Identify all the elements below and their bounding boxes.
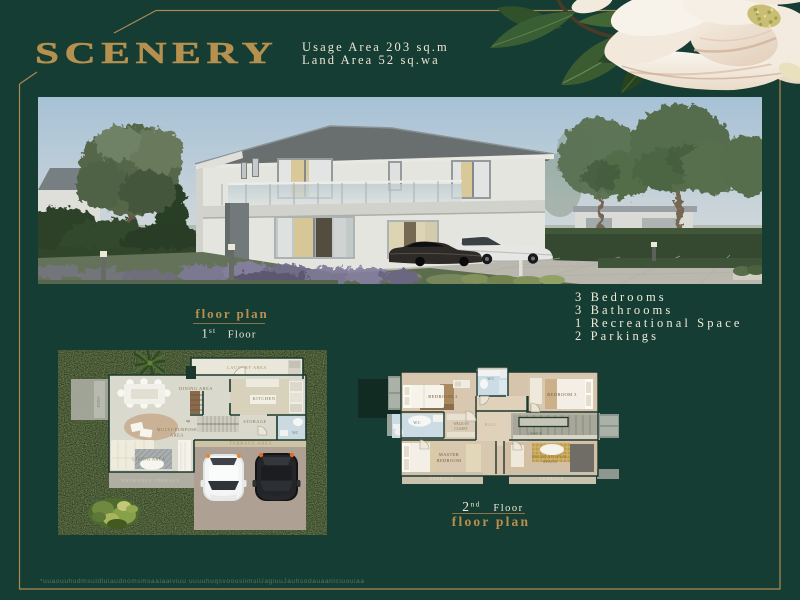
svg-text:BEDROOM 3: BEDROOM 3 bbox=[547, 392, 577, 397]
svg-text:WC: WC bbox=[413, 420, 421, 425]
svg-text:DINING AREA: DINING AREA bbox=[179, 386, 213, 391]
svg-text:WC: WC bbox=[487, 376, 495, 381]
svg-text:HALL: HALL bbox=[485, 422, 498, 427]
svg-text:CLOSET: CLOSET bbox=[454, 427, 468, 431]
svg-text:KITCHEN: KITCHEN bbox=[253, 396, 276, 401]
svg-text:PATIO: PATIO bbox=[96, 396, 101, 407]
svg-text:↓down ⊄: ↓down ⊄ bbox=[528, 432, 542, 436]
svg-text:TERRACE AREA: TERRACE AREA bbox=[229, 441, 272, 446]
svg-text:ENTRANCE TERRACE: ENTRANCE TERRACE bbox=[122, 478, 180, 483]
svg-text:up: up bbox=[186, 418, 190, 423]
svg-text:WC: WC bbox=[292, 430, 299, 435]
svg-text:AREA: AREA bbox=[170, 433, 184, 438]
svg-text:STORAGE: STORAGE bbox=[243, 419, 266, 424]
svg-text:TERRACE: TERRACE bbox=[540, 476, 565, 481]
svg-text:MULTI-PURPOSE: MULTI-PURPOSE bbox=[157, 427, 198, 432]
svg-text:SPACE: SPACE bbox=[543, 459, 558, 464]
svg-text:TERRACE: TERRACE bbox=[430, 476, 455, 481]
svg-text:MASTER: MASTER bbox=[439, 452, 459, 457]
svg-text:BEDROOM 2: BEDROOM 2 bbox=[428, 394, 457, 399]
svg-text:LAUNDRY AREA: LAUNDRY AREA bbox=[227, 365, 267, 370]
svg-text:LIVING AREA: LIVING AREA bbox=[132, 457, 166, 462]
svg-text:BEDROOM: BEDROOM bbox=[437, 458, 462, 463]
svg-text:WALK-IN: WALK-IN bbox=[453, 422, 469, 426]
